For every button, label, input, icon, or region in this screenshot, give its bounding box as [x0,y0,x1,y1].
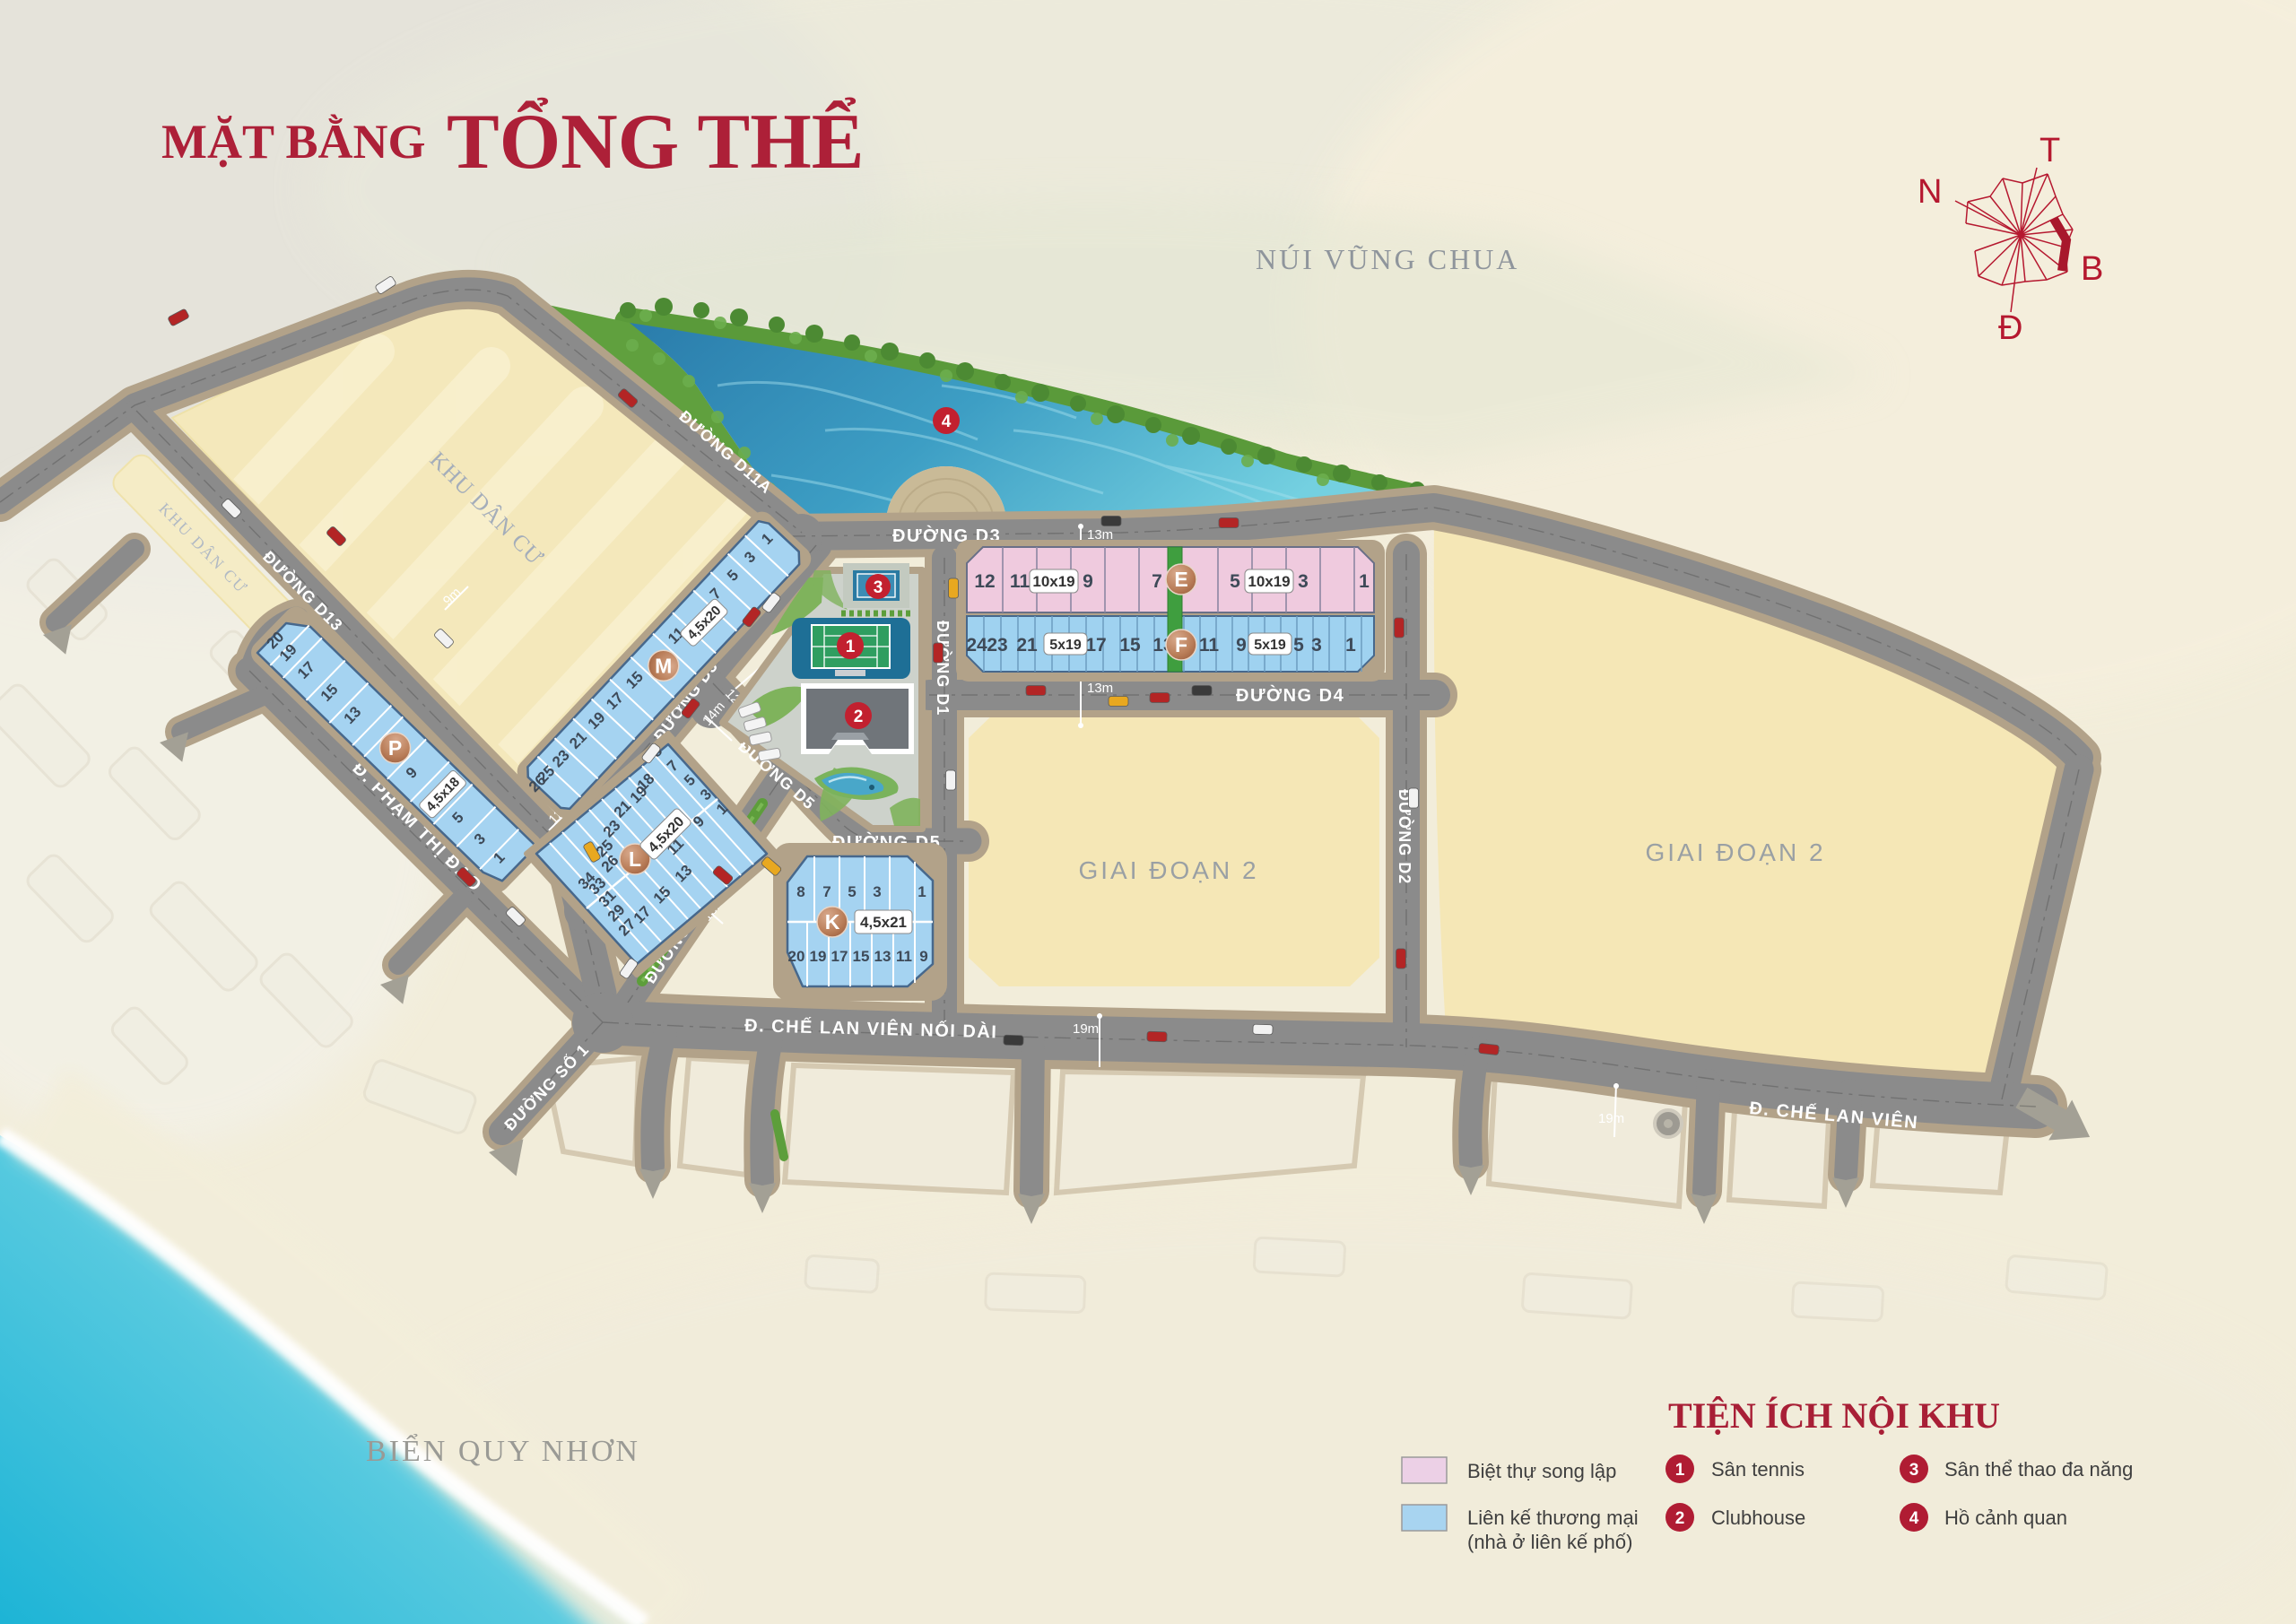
svg-text:N: N [1918,173,1942,211]
svg-text:Sân tennis: Sân tennis [1711,1458,1805,1481]
svg-text:9: 9 [919,948,927,965]
svg-text:24: 24 [966,635,987,656]
svg-text:2: 2 [854,708,864,726]
svg-text:3: 3 [874,578,883,597]
svg-text:ĐƯỜNG D1: ĐƯỜNG D1 [934,621,952,716]
svg-text:11: 11 [896,948,912,965]
svg-text:19m: 19m [1598,1111,1624,1126]
svg-text:17: 17 [1085,635,1106,656]
svg-text:11: 11 [1010,571,1031,592]
svg-text:L: L [629,847,641,871]
svg-text:5x19: 5x19 [1254,638,1286,653]
svg-text:1: 1 [1675,1461,1685,1480]
svg-text:4: 4 [942,413,952,431]
svg-text:GIAI ĐOẠN 2: GIAI ĐOẠN 2 [1078,856,1258,884]
svg-text:5: 5 [848,883,856,900]
svg-text:ĐƯỜNG D4: ĐƯỜNG D4 [1236,684,1344,706]
svg-text:Liên kế thương mại: Liên kế thương mại [1467,1507,1639,1529]
svg-text:TIỆN ÍCH NỘI KHU: TIỆN ÍCH NỘI KHU [1668,1395,2000,1436]
svg-text:TỔNG THỂ: TỔNG THỂ [447,97,864,186]
svg-text:T: T [2039,132,2060,169]
svg-text:8: 8 [796,883,804,900]
svg-text:E: E [1174,568,1187,591]
svg-text:Hồ cảnh quan: Hồ cảnh quan [1944,1507,2067,1529]
svg-text:3: 3 [1298,571,1309,592]
svg-text:15: 15 [853,948,870,965]
svg-text:NÚI VŨNG CHUA: NÚI VŨNG CHUA [1256,243,1519,275]
svg-text:7: 7 [822,883,831,900]
svg-text:GIAI ĐOẠN 2: GIAI ĐOẠN 2 [1645,838,1825,866]
svg-text:3: 3 [873,883,881,900]
svg-text:Đ: Đ [1998,309,2022,347]
svg-text:2: 2 [1675,1509,1685,1528]
svg-text:P: P [388,736,402,760]
svg-text:1: 1 [846,638,856,656]
svg-text:19m: 19m [1073,1021,1099,1037]
svg-text:9: 9 [1236,635,1247,656]
svg-text:3: 3 [1909,1461,1919,1480]
svg-text:17: 17 [831,948,848,965]
svg-text:1: 1 [1359,571,1370,592]
svg-text:5: 5 [1293,635,1304,656]
svg-text:13: 13 [874,948,891,965]
svg-text:5: 5 [1230,571,1240,592]
svg-text:11: 11 [1199,635,1220,656]
svg-text:4,5x21: 4,5x21 [860,914,907,931]
svg-text:(nhà ở liên kế phố): (nhà ở liên kế phố) [1467,1531,1632,1553]
svg-text:M: M [655,654,672,677]
svg-text:5x19: 5x19 [1049,638,1082,653]
svg-text:K: K [825,910,840,934]
svg-text:Sân thể thao đa năng: Sân thể thao đa năng [1944,1458,2133,1481]
svg-text:Biệt thự song lập: Biệt thự song lập [1467,1460,1616,1482]
svg-text:Clubhouse: Clubhouse [1711,1507,1805,1529]
svg-text:F: F [1175,633,1187,656]
svg-text:10x19: 10x19 [1032,573,1074,590]
svg-text:23: 23 [987,635,1007,656]
svg-text:BIỂN QUY NHƠN: BIỂN QUY NHƠN [366,1434,640,1468]
svg-text:1: 1 [918,883,926,900]
svg-text:7: 7 [1152,571,1162,592]
svg-text:19: 19 [810,948,827,965]
svg-text:MẶT BẰNG: MẶT BẰNG [161,114,426,169]
svg-text:1: 1 [1345,635,1356,656]
svg-text:21: 21 [1016,635,1038,656]
svg-text:B: B [2081,250,2103,288]
svg-text:15: 15 [1119,635,1141,656]
svg-text:13m: 13m [1087,681,1113,696]
svg-text:20: 20 [788,948,805,965]
svg-text:12: 12 [974,571,995,592]
svg-text:4: 4 [1909,1509,1919,1528]
svg-text:10x19: 10x19 [1248,573,1290,590]
svg-text:3: 3 [1311,635,1322,656]
svg-text:9: 9 [1083,571,1093,592]
